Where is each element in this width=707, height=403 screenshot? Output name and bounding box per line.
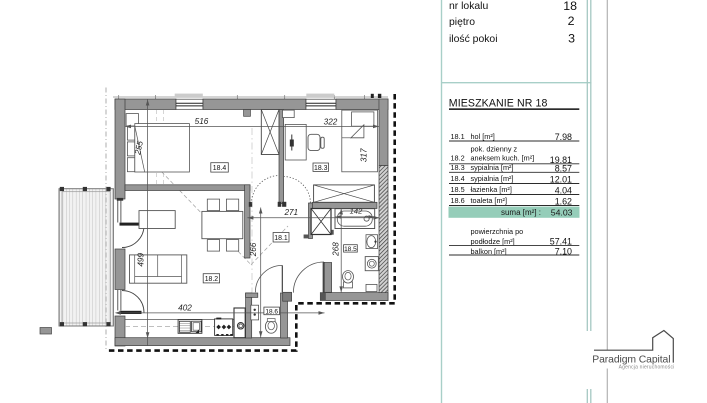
svg-text:powierzchnia po: powierzchnia po — [471, 227, 524, 236]
svg-text:18.1: 18.1 — [451, 132, 465, 141]
svg-text:499: 499 — [136, 253, 145, 267]
svg-text:Agencja nieruchomości: Agencja nieruchomości — [619, 365, 675, 371]
svg-text:3: 3 — [568, 31, 575, 45]
svg-text:266: 266 — [249, 242, 258, 257]
svg-text:aneksem kuch. [m²]: aneksem kuch. [m²] — [471, 154, 535, 163]
svg-text:18.4: 18.4 — [213, 165, 227, 172]
svg-text:18: 18 — [563, 0, 577, 13]
svg-text:57.41: 57.41 — [550, 236, 572, 246]
svg-text:2: 2 — [568, 14, 575, 28]
svg-text:268: 268 — [331, 242, 340, 257]
svg-text:toaleta [m²]: toaleta [m²] — [471, 196, 508, 205]
svg-text:piętro: piętro — [449, 17, 475, 28]
svg-text:516: 516 — [195, 117, 209, 126]
svg-text:18.2: 18.2 — [451, 154, 465, 163]
svg-text:271: 271 — [283, 208, 298, 217]
svg-text:18.5: 18.5 — [451, 185, 465, 194]
svg-text:18.6: 18.6 — [451, 196, 465, 205]
svg-text:18.5: 18.5 — [344, 246, 357, 253]
svg-text:18.6: 18.6 — [265, 308, 278, 315]
svg-text:balkon [m²]: balkon [m²] — [471, 247, 507, 256]
svg-text:8.57: 8.57 — [555, 163, 572, 173]
svg-text:7.98: 7.98 — [555, 132, 572, 142]
svg-text:hol [m²]: hol [m²] — [471, 132, 495, 141]
svg-text:18.3: 18.3 — [314, 165, 328, 172]
svg-text:4.04: 4.04 — [555, 186, 572, 196]
svg-text:ilość pokoi: ilość pokoi — [449, 34, 498, 45]
svg-text:podłodze [m²]: podłodze [m²] — [471, 237, 515, 246]
svg-text:sypialnia [m²]: sypialnia [m²] — [471, 163, 514, 172]
svg-text:sypialnia [m²]: sypialnia [m²] — [471, 174, 514, 183]
svg-text:nr lokalu: nr lokalu — [449, 1, 488, 12]
svg-text:suma [m²] :: suma [m²] : — [501, 208, 541, 217]
svg-text:pok. dzienny z: pok. dzienny z — [471, 145, 518, 154]
svg-text:MIESZKANIE NR 18: MIESZKANIE NR 18 — [449, 98, 548, 110]
svg-text:18.4: 18.4 — [451, 174, 465, 183]
svg-text:54.03: 54.03 — [551, 207, 573, 217]
svg-text:12.01: 12.01 — [550, 175, 572, 185]
svg-text:317: 317 — [359, 148, 368, 162]
svg-text:18.1: 18.1 — [274, 235, 288, 242]
svg-text:322: 322 — [324, 118, 338, 127]
svg-text:18.3: 18.3 — [451, 163, 465, 172]
svg-text:łazienka [m²]: łazienka [m²] — [471, 185, 512, 194]
svg-text:402: 402 — [178, 303, 192, 312]
svg-text:142: 142 — [350, 207, 363, 216]
svg-text:18.2: 18.2 — [205, 276, 219, 283]
svg-text:1.62: 1.62 — [555, 197, 572, 207]
